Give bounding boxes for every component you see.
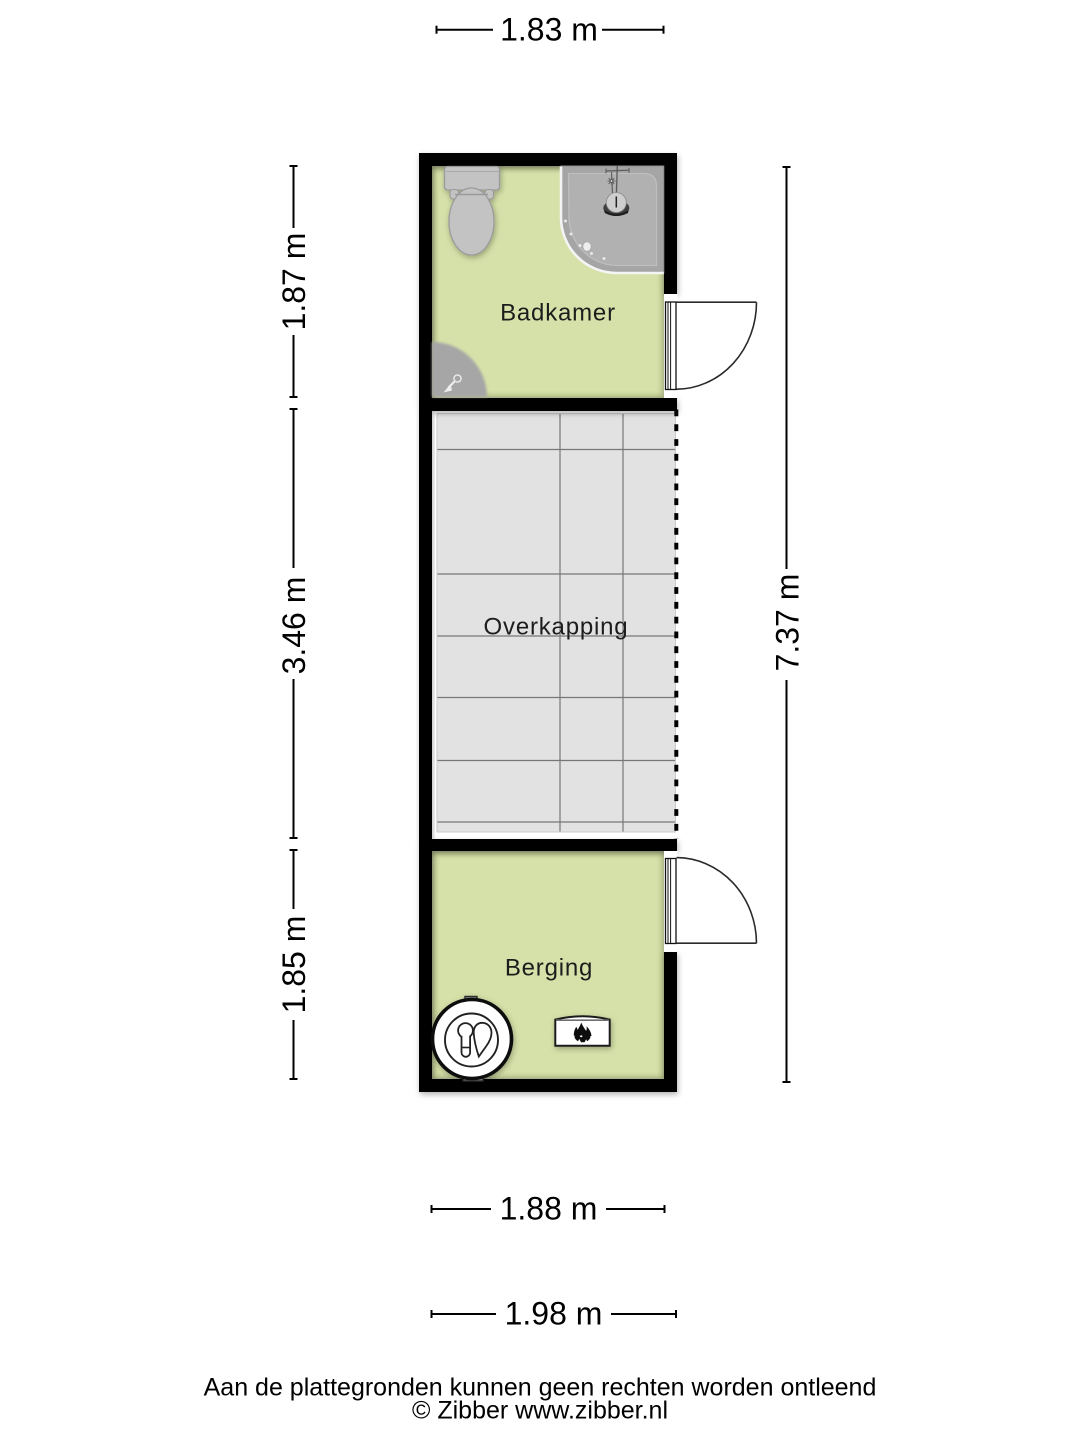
svg-text:Badkamer: Badkamer (500, 300, 616, 327)
svg-text:1.98 m: 1.98 m (505, 1296, 603, 1332)
svg-text:1.83 m: 1.83 m (500, 12, 598, 48)
svg-text:3.46 m: 3.46 m (276, 577, 312, 675)
svg-text:1.85 m: 1.85 m (276, 916, 312, 1014)
svg-text:Berging: Berging (505, 955, 593, 982)
svg-text:Overkapping: Overkapping (484, 614, 629, 641)
svg-text:7.37 m: 7.37 m (770, 574, 806, 672)
svg-text:1.88 m: 1.88 m (500, 1191, 598, 1227)
svg-text:© Zibber www.zibber.nl: © Zibber www.zibber.nl (412, 1397, 668, 1425)
svg-text:1.87 m: 1.87 m (276, 233, 312, 331)
